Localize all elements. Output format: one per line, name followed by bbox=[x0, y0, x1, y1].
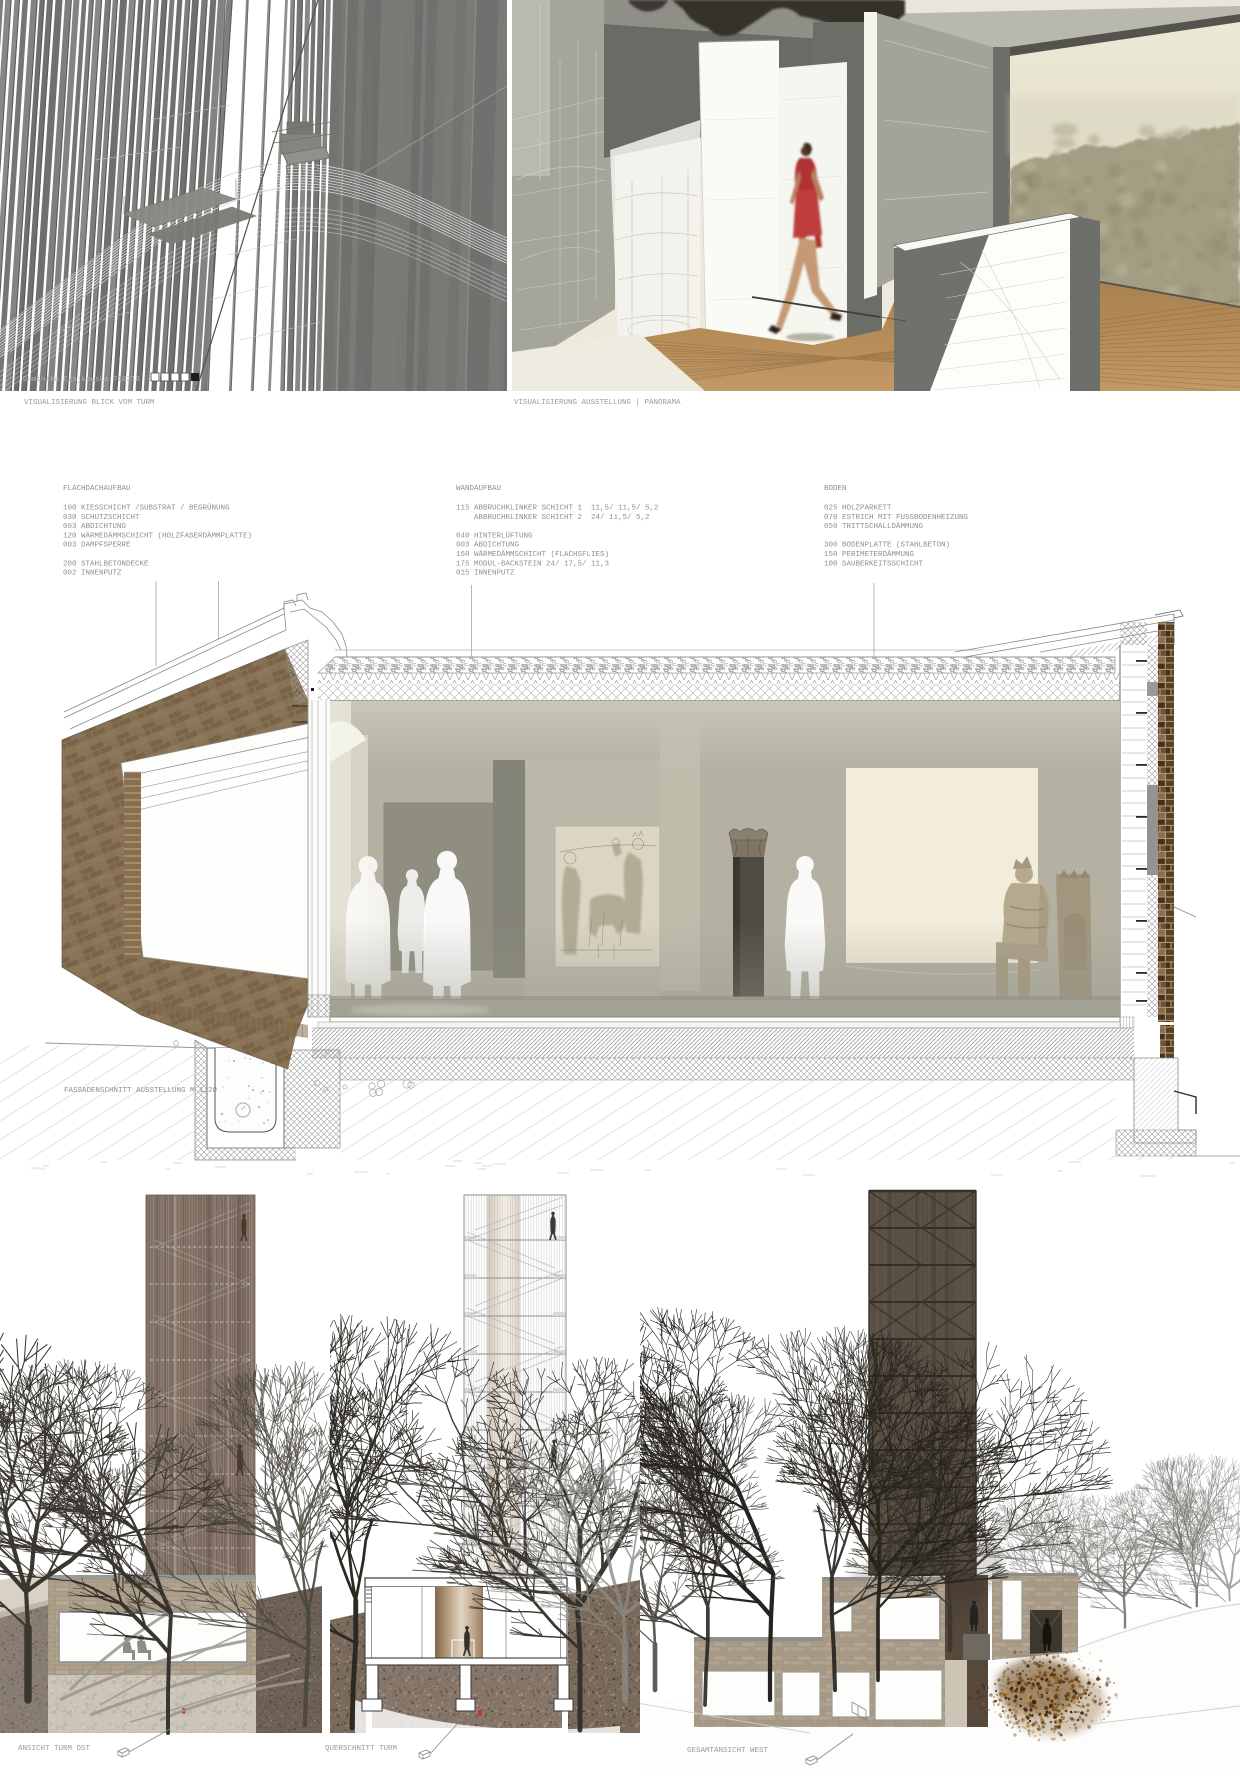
svg-text:VISUALISIERUNG BLICK VOM TURM: VISUALISIERUNG BLICK VOM TURM bbox=[24, 399, 155, 407]
svg-text:200 STAHLBETONDECKE: 200 STAHLBETONDECKE bbox=[63, 560, 149, 568]
svg-text:BODEN: BODEN bbox=[824, 485, 847, 493]
svg-text:003 DAMPFSPERRE: 003 DAMPFSPERRE bbox=[63, 542, 131, 550]
svg-text:003 ABDICHTUNG: 003 ABDICHTUNG bbox=[63, 523, 127, 531]
svg-text:115 ABBRUCHKLINKER SCHICHT 1: 115 ABBRUCHKLINKER SCHICHT 1 11,5/ 11,5/… bbox=[456, 505, 659, 513]
svg-text:030 SCHUTZSCHICHT: 030 SCHUTZSCHICHT bbox=[63, 514, 140, 522]
svg-text:100 SAUBERKEITSSCHICHT: 100 SAUBERKEITSSCHICHT bbox=[824, 560, 924, 568]
svg-text:150 PERIMETERDÄMMUNG: 150 PERIMETERDÄMMUNG bbox=[824, 550, 915, 559]
svg-text:WANDAUFBAU: WANDAUFBAU bbox=[456, 485, 501, 493]
svg-text:040 HINTERLÜFTUNG: 040 HINTERLÜFTUNG bbox=[456, 531, 533, 540]
svg-text:015 INNENPUTZ: 015 INNENPUTZ bbox=[456, 570, 515, 578]
svg-text:VISUALISIERUNG AUSSTELLUNG | P: VISUALISIERUNG AUSSTELLUNG | PANORAMA bbox=[514, 399, 681, 407]
svg-text:050 TRITTSCHALLDÄMMUNG: 050 TRITTSCHALLDÄMMUNG bbox=[824, 522, 924, 531]
svg-text:ABBRUCHKLINKER SCHICHT 2 24/: ABBRUCHKLINKER SCHICHT 2 24/ 11,5/ 5,2 bbox=[456, 514, 650, 522]
svg-text:GESAMTANSICHT WEST: GESAMTANSICHT WEST bbox=[687, 1747, 769, 1755]
svg-text:ANSICHT TURM OST: ANSICHT TURM OST bbox=[18, 1745, 91, 1753]
svg-text:120 WÄRMEDÄMMSCHICHT (HOLZFASE: 120 WÄRMEDÄMMSCHICHT (HOLZFASERDÄMMPLATT… bbox=[63, 531, 252, 540]
svg-text:FASSADENSCHNITT AUSSTELLUNG M: FASSADENSCHNITT AUSSTELLUNG M 1:20 bbox=[64, 1087, 218, 1095]
svg-text:070 ESTRICH MIT FUSSBODENHEIZU: 070 ESTRICH MIT FUSSBODENHEIZUNG bbox=[824, 514, 969, 522]
svg-text:100 KIESSCHICHT /SUBSTRAT / BE: 100 KIESSCHICHT /SUBSTRAT / BEGRÜNUNG bbox=[63, 504, 230, 513]
svg-text:300 BODENPLATTE (STAHLBETON): 300 BODENPLATTE (STAHLBETON) bbox=[824, 542, 950, 550]
svg-text:Dominika Czajkowska 716216: Dominika Czajkowska 716216 bbox=[23, 376, 141, 384]
svg-text:160 WÄRMEDÄMMSCHICHT (FLACHSFL: 160 WÄRMEDÄMMSCHICHT (FLACHSFLIES) bbox=[456, 550, 609, 559]
svg-text:175 MODUL-BACKSTEIN 24/ 17,5/: 175 MODUL-BACKSTEIN 24/ 17,5/ 11,3 bbox=[456, 560, 610, 568]
svg-text:FLACHDACHAUFBAU: FLACHDACHAUFBAU bbox=[63, 485, 131, 493]
svg-text:002 INNENPUTZ: 002 INNENPUTZ bbox=[63, 570, 122, 578]
svg-text:025 HOLZPARKETT: 025 HOLZPARKETT bbox=[824, 505, 892, 513]
svg-text:003 ABDICHTUNG: 003 ABDICHTUNG bbox=[456, 542, 520, 550]
svg-text:QUERSCHNITT TURM: QUERSCHNITT TURM bbox=[325, 1745, 398, 1753]
